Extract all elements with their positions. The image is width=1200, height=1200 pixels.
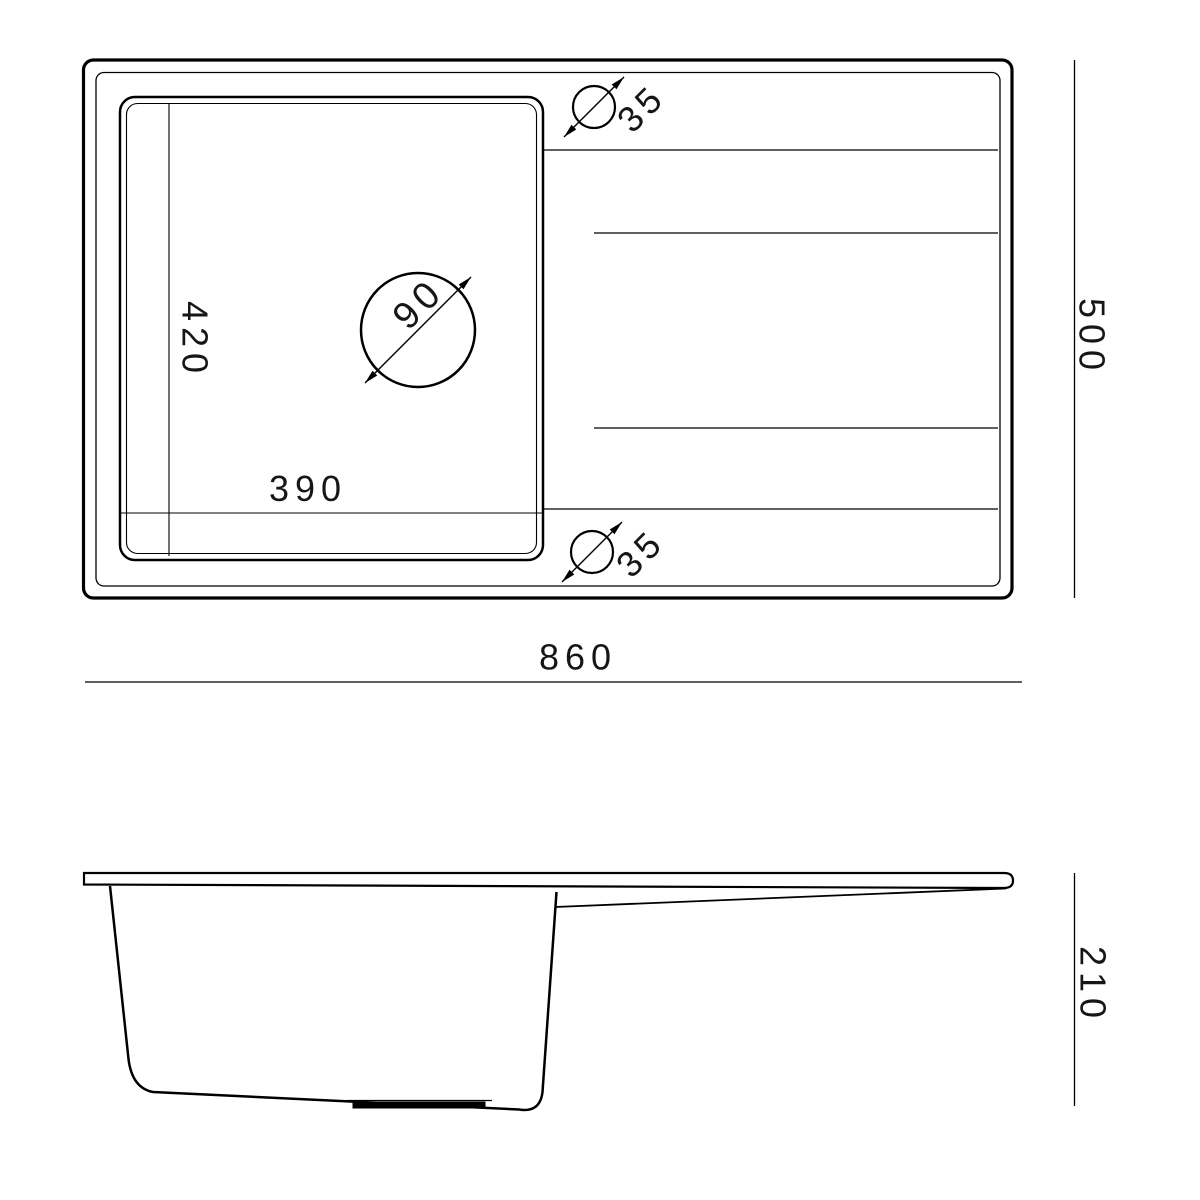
sink-side-view: 210 [84, 873, 1113, 1110]
overall-dimensions: 860 500 [85, 60, 1112, 682]
sink-top-view: 35 35 90 420 390 [84, 60, 1013, 598]
drainboard-underside-line [555, 889, 1006, 908]
drain-flange [353, 1102, 486, 1109]
top-view-outer-edge [84, 60, 1013, 598]
dim-height-label: 210 [1072, 946, 1113, 1024]
bowl-profile [110, 886, 557, 1110]
tap-hole-top-label: 35 [609, 76, 673, 140]
dim-depth-label: 500 [1071, 298, 1112, 376]
dim-width-label: 860 [539, 637, 617, 678]
drain-hole-label: 90 [385, 270, 453, 338]
bowl-depth-label: 420 [174, 301, 215, 379]
sink-technical-drawing: 35 35 90 420 390 860 500 210 [0, 0, 1200, 1200]
drawing-svg: 35 35 90 420 390 860 500 210 [0, 0, 1200, 1200]
tap-hole-bottom-label: 35 [608, 521, 672, 585]
bowl-width-label: 390 [269, 468, 347, 509]
countertop-profile [84, 873, 1013, 888]
